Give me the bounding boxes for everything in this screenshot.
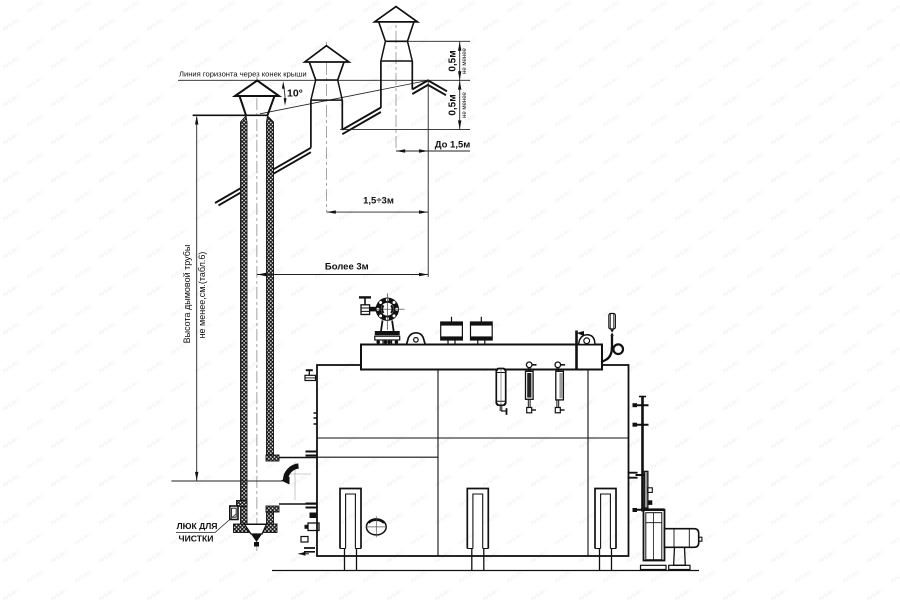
svg-text:0,5м: 0,5м [448, 94, 459, 115]
svg-text:Высота дымовой трубы: Высота дымовой трубы [182, 245, 192, 344]
svg-text:не менее: не менее [462, 47, 468, 73]
svg-text:0,5м: 0,5м [448, 50, 459, 71]
svg-text:Линия горизонта через конек кр: Линия горизонта через конек крыши [179, 70, 307, 79]
svg-text:1,5÷3м: 1,5÷3м [363, 196, 394, 207]
svg-text:10°: 10° [287, 88, 303, 100]
svg-text:не менее: не менее [462, 91, 468, 117]
svg-text:ЛЮК ДЛЯ: ЛЮК ДЛЯ [177, 521, 218, 531]
svg-text:До 1,5м: До 1,5м [435, 139, 471, 150]
svg-text:не менее,см.(табл.6): не менее,см.(табл.6) [197, 252, 207, 339]
svg-text:Более 3м: Более 3м [325, 262, 369, 273]
svg-text:ЧИСТКИ: ЧИСТКИ [179, 534, 214, 544]
